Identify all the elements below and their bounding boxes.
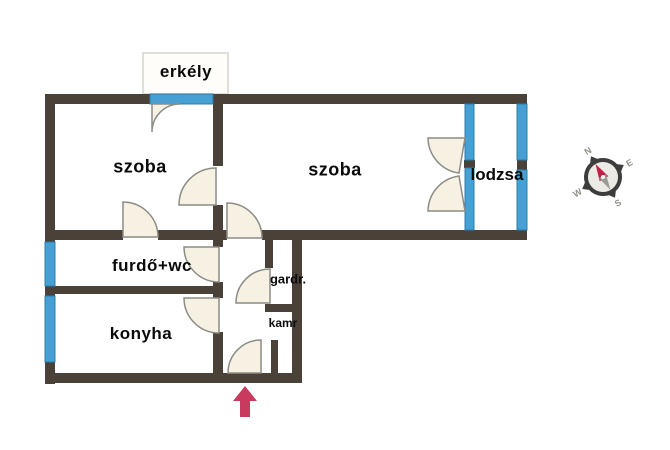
balcony-door-window xyxy=(150,94,213,104)
compass-label-w: W xyxy=(571,186,584,199)
loggia-outer-window-upper xyxy=(517,104,527,160)
room2-label: szoba xyxy=(308,160,362,181)
kitchen-door-arc xyxy=(184,298,219,333)
bathroom-window xyxy=(45,242,55,286)
wardrobe-label: gardr. xyxy=(270,272,306,287)
balcony-door-arc xyxy=(152,104,180,132)
compass-label-n: N xyxy=(583,145,594,157)
loggia-glazing-upper xyxy=(465,104,474,160)
room1-room2-door-arc xyxy=(179,168,216,205)
entrance-arrow xyxy=(233,386,257,417)
entrance-door-arc xyxy=(228,340,261,373)
kitchen-label: konyha xyxy=(110,324,173,344)
floor-plan-canvas: N E S W erkély szoba szoba lodzsa furdő+… xyxy=(0,0,670,450)
wardrobe-door-arc xyxy=(236,269,270,303)
compass-label-e: E xyxy=(624,157,634,169)
compass-label-s: S xyxy=(613,197,623,209)
room1-bathroom-door-arc xyxy=(123,202,158,237)
balcony-label: erkély xyxy=(160,62,212,82)
compass-icon: N E S W xyxy=(556,130,649,224)
loggia-label: lodzsa xyxy=(471,165,524,185)
loggia-french-door-lower xyxy=(428,176,465,211)
bathroom-label: furdő+wc xyxy=(112,256,192,276)
loggia-french-door-upper xyxy=(428,138,465,173)
room1-label: szoba xyxy=(113,157,167,178)
floor-plan-drawing: N E S W xyxy=(0,0,670,450)
hall-room2-door-arc xyxy=(227,203,262,238)
pantry-label: kamr xyxy=(269,316,298,330)
kitchen-window xyxy=(45,296,55,362)
